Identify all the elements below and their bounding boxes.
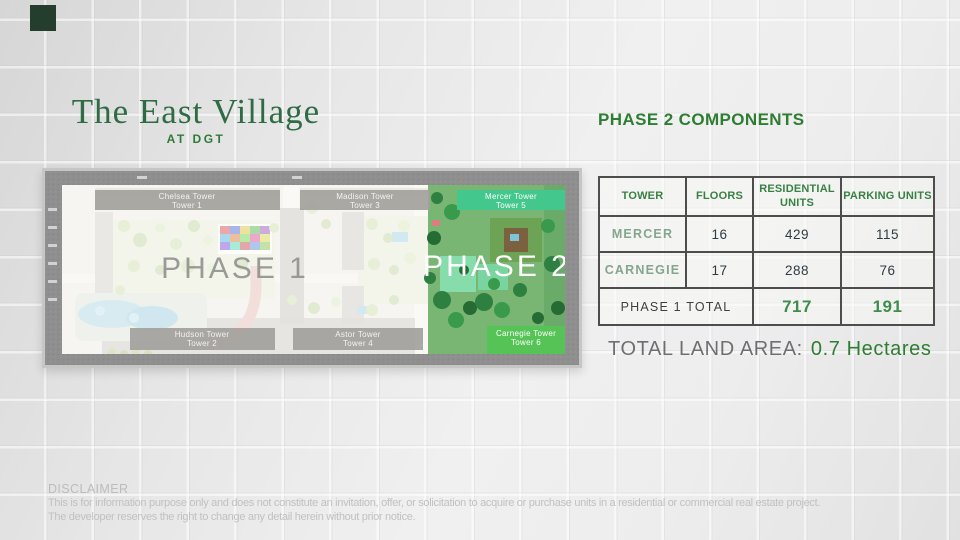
- phase1-label: PHASE 1: [161, 252, 309, 285]
- cell-mercer-tower: MERCER: [599, 216, 686, 252]
- corner-accent-square: [30, 5, 56, 31]
- disclaimer-block: DISCLAIMER This is for information purpo…: [48, 482, 820, 524]
- tower-label-mercer-name: Mercer Tower: [485, 192, 537, 201]
- cell-total-label: PHASE 1 TOTAL: [599, 288, 753, 325]
- disclaimer-heading: DISCLAIMER: [48, 482, 820, 497]
- cell-carnegie-residential: 288: [753, 252, 841, 288]
- tower-label-mercer-number: Tower 5: [496, 201, 526, 210]
- header-residential-units: RESIDENTIAL UNITS: [753, 177, 841, 216]
- header-floors: FLOORS: [686, 177, 753, 216]
- land-area-value: 0.7 Hectares: [811, 338, 932, 360]
- tower-label-chelsea-name: Chelsea Tower: [159, 192, 216, 201]
- cell-carnegie-tower: CARNEGIE: [599, 252, 686, 288]
- tower-label-madison-number: Tower 3: [350, 201, 380, 210]
- tower-label-hudson-name: Hudson Tower: [175, 330, 230, 339]
- site-plan: Chelsea Tower Tower 1 Madison Tower Towe…: [42, 168, 582, 368]
- phase2-label: PHASE 2: [423, 250, 571, 283]
- disclaimer-line-1: This is for information purpose only and…: [48, 497, 820, 511]
- cell-total-parking: 191: [841, 288, 934, 325]
- site-plan-image: Chelsea Tower Tower 1 Madison Tower Towe…: [42, 168, 582, 368]
- tower-label-carnegie-name: Carnegie Tower: [496, 329, 556, 338]
- tower-label-madison-name: Madison Tower: [336, 192, 394, 201]
- land-area-label: TOTAL LAND AREA:: [608, 338, 803, 360]
- slide: { "brand": { "title": "The East Village"…: [0, 0, 960, 540]
- table-row: MERCER 16 429 115: [599, 216, 934, 252]
- cell-total-residential: 717: [753, 288, 841, 325]
- total-land-area: TOTAL LAND AREA:0.7 Hectares: [608, 338, 931, 361]
- table-header-row: TOWER FLOORS RESIDENTIAL UNITS PARKING U…: [599, 177, 934, 216]
- brand-block: The East Village AT DGT: [46, 94, 346, 146]
- header-tower: TOWER: [599, 177, 686, 216]
- table-total-row: PHASE 1 TOTAL 717 191: [599, 288, 934, 325]
- table-row: CARNEGIE 17 288 76: [599, 252, 934, 288]
- cell-carnegie-parking: 76: [841, 252, 934, 288]
- components-table: TOWER FLOORS RESIDENTIAL UNITS PARKING U…: [598, 176, 935, 326]
- phase2-components-heading: PHASE 2 COMPONENTS: [598, 110, 805, 130]
- tower-label-carnegie-number: Tower 6: [511, 338, 541, 347]
- tower-label-chelsea-number: Tower 1: [172, 201, 202, 210]
- tower-label-astor-number: Tower 4: [343, 339, 373, 348]
- tower-label-hudson-number: Tower 2: [187, 339, 217, 348]
- brand-subtitle: AT DGT: [46, 132, 346, 146]
- cell-mercer-residential: 429: [753, 216, 841, 252]
- disclaimer-line-2: The developer reserves the right to chan…: [48, 511, 820, 525]
- brand-title: The East Village: [46, 94, 346, 130]
- cell-mercer-floors: 16: [686, 216, 753, 252]
- tower-label-astor-name: Astor Tower: [335, 330, 380, 339]
- cell-mercer-parking: 115: [841, 216, 934, 252]
- header-parking-units: PARKING UNITS: [841, 177, 934, 216]
- cell-carnegie-floors: 17: [686, 252, 753, 288]
